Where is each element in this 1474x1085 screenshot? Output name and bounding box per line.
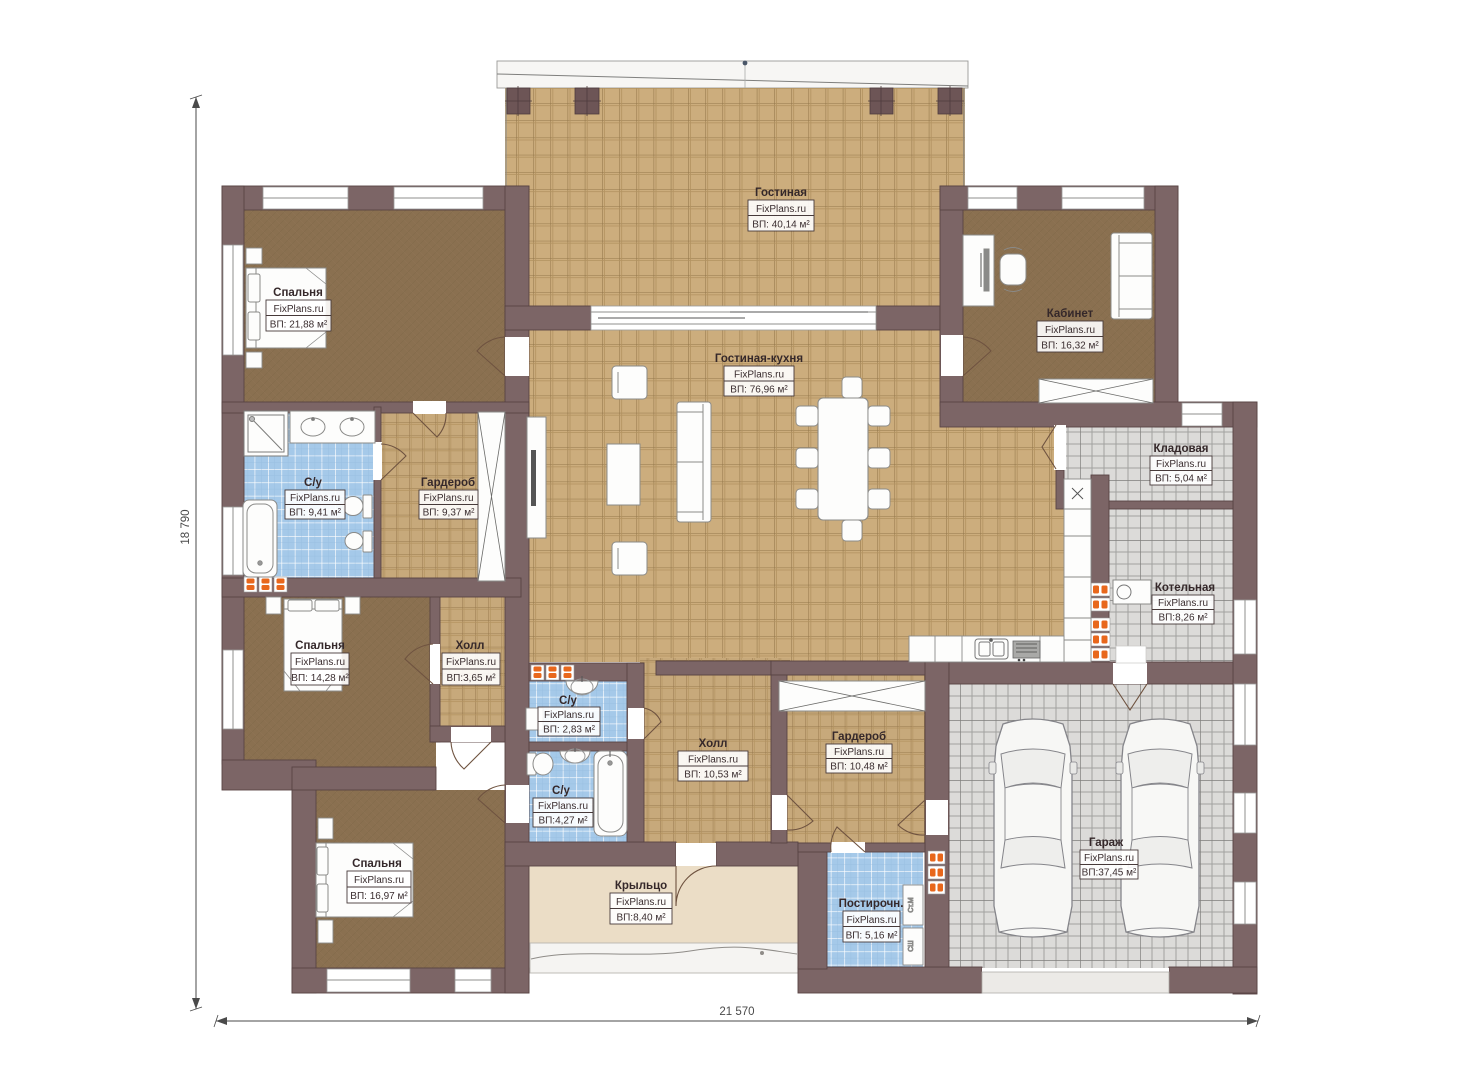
- svg-text:Гараж: Гараж: [1089, 837, 1124, 849]
- svg-text:ВП: 16,97 м²: ВП: 16,97 м²: [350, 891, 408, 902]
- svg-text:С/у: С/у: [552, 785, 571, 797]
- svg-text:FixPlans.ru: FixPlans.ru: [295, 657, 345, 668]
- svg-text:Крыльцо: Крыльцо: [615, 880, 667, 892]
- svg-text:ВП: 5,16 м²: ВП: 5,16 м²: [846, 931, 899, 942]
- svg-text:ВП:3,65 м²: ВП:3,65 м²: [446, 673, 496, 684]
- svg-text:Постирочн.: Постирочн.: [839, 898, 904, 910]
- svg-text:Холл: Холл: [699, 738, 728, 750]
- svg-text:18 790: 18 790: [180, 509, 192, 544]
- svg-text:ВП:4,27 м²: ВП:4,27 м²: [538, 816, 588, 827]
- svg-text:ВП: 10,53 м²: ВП: 10,53 м²: [684, 770, 742, 781]
- svg-text:FixPlans.ru: FixPlans.ru: [756, 204, 806, 215]
- svg-text:FixPlans.ru: FixPlans.ru: [544, 710, 594, 721]
- svg-text:FixPlans.ru: FixPlans.ru: [1084, 853, 1134, 864]
- svg-text:ВП:37,45 м²: ВП:37,45 м²: [1082, 868, 1137, 879]
- svg-text:FixPlans.ru: FixPlans.ru: [734, 370, 784, 381]
- svg-text:Холл: Холл: [456, 640, 485, 652]
- svg-text:21 570: 21 570: [719, 1006, 754, 1018]
- svg-text:FixPlans.ru: FixPlans.ru: [1156, 459, 1206, 470]
- svg-text:FixPlans.ru: FixPlans.ru: [846, 915, 896, 926]
- svg-text:Гардероб: Гардероб: [832, 731, 886, 743]
- svg-text:Спальня: Спальня: [295, 640, 345, 652]
- svg-text:С/у: С/у: [559, 695, 578, 707]
- svg-text:ВП: 10,48 м²: ВП: 10,48 м²: [830, 762, 888, 773]
- svg-text:ВП: 5,04 м²: ВП: 5,04 м²: [1155, 474, 1208, 485]
- svg-text:ВП: 40,14 м²: ВП: 40,14 м²: [752, 220, 810, 231]
- svg-text:Гостиная-кухня: Гостиная-кухня: [715, 353, 803, 365]
- svg-text:ВП: 76,96 м²: ВП: 76,96 м²: [730, 385, 788, 396]
- svg-text:Спальня: Спальня: [352, 858, 402, 870]
- svg-text:С/у: С/у: [304, 477, 323, 489]
- svg-text:FixPlans.ru: FixPlans.ru: [423, 493, 473, 504]
- svg-text:ВП: 2,83 м²: ВП: 2,83 м²: [543, 725, 596, 736]
- svg-text:FixPlans.ru: FixPlans.ru: [354, 875, 404, 886]
- svg-text:ВП: 9,37 м²: ВП: 9,37 м²: [423, 508, 476, 519]
- svg-text:FixPlans.ru: FixPlans.ru: [688, 755, 738, 766]
- svg-text:Гардероб: Гардероб: [421, 477, 475, 489]
- svg-text:ВП:8,40 м²: ВП:8,40 м²: [616, 913, 666, 924]
- svg-text:FixPlans.ru: FixPlans.ru: [1045, 325, 1095, 336]
- svg-text:FixPlans.ru: FixPlans.ru: [290, 493, 340, 504]
- svg-text:FixPlans.ru: FixPlans.ru: [1158, 598, 1208, 609]
- svg-text:Кладовая: Кладовая: [1153, 443, 1208, 455]
- svg-text:ВП: 21,88 м²: ВП: 21,88 м²: [270, 320, 328, 331]
- svg-text:FixPlans.ru: FixPlans.ru: [446, 657, 496, 668]
- svg-text:Кабинет: Кабинет: [1047, 308, 1094, 320]
- svg-text:ВП: 14,28 м²: ВП: 14,28 м²: [291, 673, 349, 684]
- svg-text:FixPlans.ru: FixPlans.ru: [616, 897, 666, 908]
- svg-text:Гостиная: Гостиная: [755, 187, 807, 199]
- svg-text:FixPlans.ru: FixPlans.ru: [273, 304, 323, 315]
- svg-text:СШ: СШ: [908, 940, 915, 951]
- svg-text:ВП: 16,32 м²: ВП: 16,32 м²: [1041, 341, 1099, 352]
- svg-text:FixPlans.ru: FixPlans.ru: [834, 747, 884, 758]
- svg-text:Котельная: Котельная: [1155, 582, 1215, 594]
- svg-text:ВП: 9,41 м²: ВП: 9,41 м²: [289, 508, 342, 519]
- svg-text:Спальня: Спальня: [273, 287, 323, 299]
- svg-text:ВП:8,26 м²: ВП:8,26 м²: [1158, 613, 1208, 624]
- svg-text:Ст.М: Ст.М: [908, 897, 915, 912]
- svg-text:FixPlans.ru: FixPlans.ru: [538, 801, 588, 812]
